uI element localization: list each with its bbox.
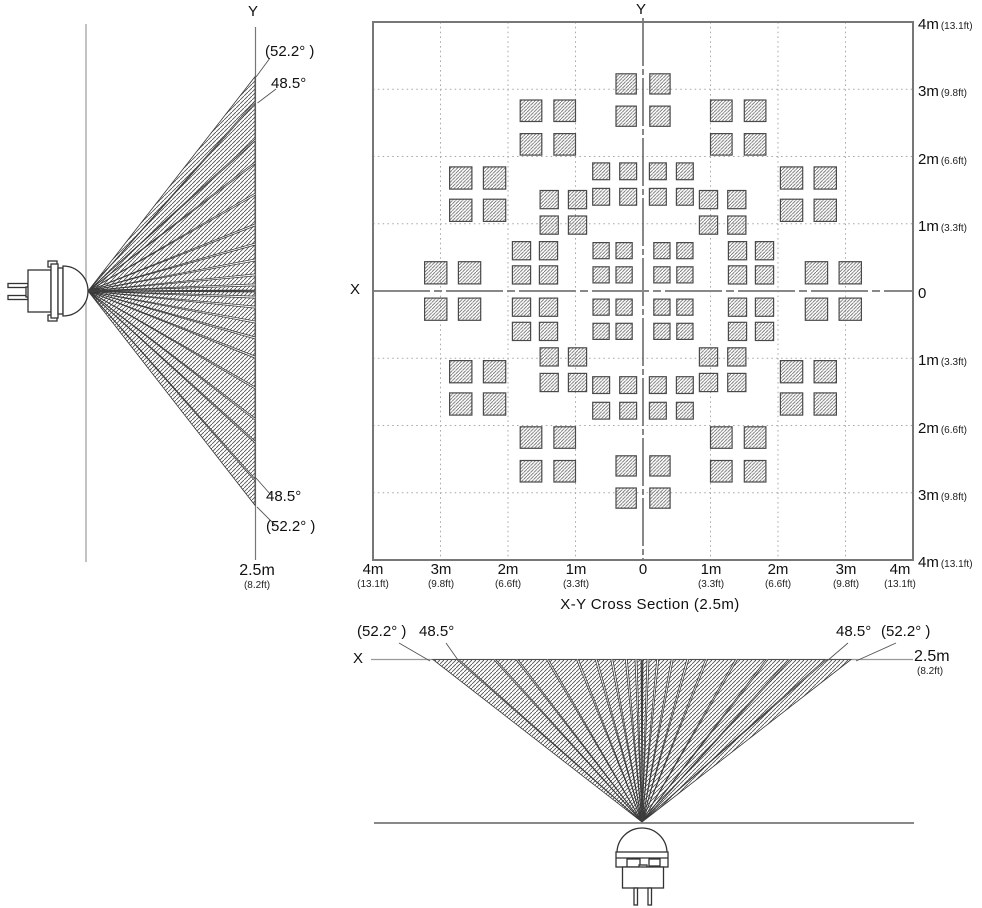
x-axis-tick: 1m(3.3ft): [544, 562, 608, 590]
side-angle-outer-bottom-label: (52.2° ): [266, 518, 315, 535]
detection-zone-square: [568, 348, 586, 366]
side-angle-outer-top-label: (52.2° ): [265, 43, 314, 60]
detection-zone-square: [593, 188, 610, 205]
sensor-dome-lens: [63, 266, 88, 316]
detection-zone-square: [616, 243, 632, 259]
detection-zone-square: [539, 298, 557, 316]
detection-zone-square: [649, 188, 666, 205]
cross-section-x-axis-label: X: [350, 281, 360, 298]
detection-zone-square: [654, 323, 670, 339]
detection-zone-square: [483, 167, 505, 189]
x-axis-tick-value: 1m: [544, 562, 608, 579]
detection-zone-square: [711, 461, 733, 483]
detection-zone-square: [814, 167, 836, 189]
x-axis-tick-value: 4m: [868, 562, 932, 579]
detection-zone-square: [676, 377, 693, 394]
x-axis-tick: 4m(13.1ft): [868, 562, 932, 590]
detection-zone-square: [839, 262, 861, 284]
detection-zone-square: [654, 267, 670, 283]
detection-zone-square: [755, 266, 773, 284]
detection-zone-square: [728, 266, 746, 284]
x-axis-tick-ft: (13.1ft): [341, 579, 405, 590]
detection-zone-square: [593, 377, 610, 394]
detection-zone-square: [568, 373, 586, 391]
y-axis-tick-ft: (13.1ft): [941, 21, 973, 32]
y-axis-tick-value: 0: [918, 285, 926, 302]
detection-zone-square: [540, 191, 558, 209]
detection-zone-square: [780, 199, 802, 221]
chart-title: X-Y Cross Section (2.5m): [495, 596, 805, 613]
x-axis-tick-ft: (3.3ft): [544, 579, 608, 590]
detection-zone-square: [814, 393, 836, 415]
y-axis-tick-ft: (3.3ft): [941, 357, 967, 368]
sensor-side-view: [8, 261, 88, 321]
leader-line: [256, 58, 270, 77]
y-axis-tick-value: 2m: [918, 151, 939, 168]
detection-zone-square: [539, 266, 557, 284]
sensor-flange: [51, 264, 58, 318]
bottom-angle-outer-left-label: (52.2° ): [357, 623, 406, 640]
detection-zone-square: [539, 322, 557, 340]
detection-zone-square: [839, 298, 861, 320]
detection-zone-square: [616, 488, 636, 508]
bottom-angle-outer-right-label: (52.2° ): [881, 623, 930, 640]
detection-zone-square: [744, 134, 766, 156]
x-axis-tick-ft: (9.8ft): [409, 579, 473, 590]
detection-zone-square: [512, 322, 530, 340]
y-axis-tick: 1m(3.3ft): [918, 352, 967, 372]
x-axis-tick-value: 4m: [341, 562, 405, 579]
detection-zone-square: [676, 402, 693, 419]
detection-zone-square: [616, 106, 636, 126]
detection-zone-square: [568, 216, 586, 234]
y-axis-tick-value: 1m: [918, 352, 939, 369]
detection-zone-square: [593, 299, 609, 315]
detection-zone-square: [650, 456, 670, 476]
detection-zone-square: [520, 427, 542, 449]
x-axis-tick-ft: (6.6ft): [476, 579, 540, 590]
x-axis-tick-value: 2m: [476, 562, 540, 579]
detection-zone-square: [744, 427, 766, 449]
detection-zone-square: [554, 134, 576, 156]
detection-zone-square: [483, 361, 505, 383]
detection-zone-square: [616, 267, 632, 283]
sensor-notch: [649, 859, 660, 866]
detection-zone-square: [780, 393, 802, 415]
x-axis-tick: 2m(6.6ft): [476, 562, 540, 590]
x-axis-tick-ft: (6.6ft): [746, 579, 810, 590]
y-axis-tick: 3m(9.8ft): [918, 83, 967, 103]
x-axis-tick-value: 3m: [409, 562, 473, 579]
y-axis-tick-value: 1m: [918, 218, 939, 235]
x-axis-tick: 0: [611, 562, 675, 579]
y-axis-tick-ft: (6.6ft): [941, 156, 967, 167]
sensor-dome-lens: [617, 828, 667, 853]
detection-zone-square: [755, 322, 773, 340]
bottom-view-panel: [371, 660, 914, 906]
detection-zone-square: [540, 348, 558, 366]
leader-line: [856, 643, 896, 661]
diagram-art: [0, 0, 982, 908]
detection-zone-square: [458, 298, 480, 320]
side-axis-y-label: Y: [248, 3, 258, 20]
detection-zone-square: [450, 393, 472, 415]
y-axis-tick-ft: (9.8ft): [941, 492, 967, 503]
detection-zone-square: [654, 243, 670, 259]
detection-zone-square: [520, 100, 542, 122]
detection-zone-square: [711, 427, 733, 449]
detection-zone-square: [512, 242, 530, 260]
y-axis-tick: 1m(3.3ft): [918, 218, 967, 238]
detection-zone-square: [593, 243, 609, 259]
side-view-panel: [8, 24, 256, 562]
detection-zone-square: [780, 361, 802, 383]
detection-zone-square: [805, 298, 827, 320]
detection-zone-square: [677, 267, 693, 283]
detection-zone-square: [593, 402, 610, 419]
y-axis-tick-ft: (3.3ft): [941, 223, 967, 234]
detection-zone-square: [593, 323, 609, 339]
sensor-pin: [8, 296, 28, 300]
detection-zone-square: [728, 242, 746, 260]
y-axis-tick-ft: (9.8ft): [941, 88, 967, 99]
detection-zone-square: [814, 361, 836, 383]
detection-zone-square: [755, 242, 773, 260]
detection-zone-square: [650, 488, 670, 508]
detection-zone-square: [728, 322, 746, 340]
x-axis-tick-ft: (13.1ft): [868, 579, 932, 590]
detection-zone-square: [649, 163, 666, 180]
y-axis-tick-value: 3m: [918, 83, 939, 100]
y-axis-tick-ft: (13.1ft): [941, 559, 973, 570]
x-axis-tick-value: 0: [611, 562, 675, 579]
detection-zone-square: [805, 262, 827, 284]
bottom-distance-label: 2.5m: [914, 648, 950, 666]
detection-zone-square: [728, 216, 746, 234]
x-axis-tick-value: 1m: [679, 562, 743, 579]
detection-zone-square: [620, 402, 637, 419]
bottom-x-axis-label: X: [353, 650, 363, 667]
detection-zone-square: [616, 456, 636, 476]
detection-zone-square: [450, 361, 472, 383]
cross-section-panel: [373, 18, 913, 560]
x-axis-tick: 3m(9.8ft): [409, 562, 473, 590]
detection-zone-square: [458, 262, 480, 284]
detection-zone-square: [450, 167, 472, 189]
detection-zone-square: [650, 106, 670, 126]
y-axis-tick-value: 2m: [918, 420, 939, 437]
x-axis-tick: 4m(13.1ft): [341, 562, 405, 590]
detection-zone-square: [593, 163, 610, 180]
detection-zone-square: [483, 199, 505, 221]
y-axis-tick: 4m(13.1ft): [918, 16, 973, 36]
detection-zone-square: [711, 100, 733, 122]
sensor-body: [28, 270, 51, 312]
bottom-angle-inner-right-label: 48.5°: [836, 623, 871, 640]
detection-zone-square: [677, 243, 693, 259]
detection-zone-square: [540, 373, 558, 391]
x-axis-tick: 2m(6.6ft): [746, 562, 810, 590]
x-axis-tick-ft: (3.3ft): [679, 579, 743, 590]
leader-line: [399, 643, 430, 661]
x-axis-tick: 1m(3.3ft): [679, 562, 743, 590]
detection-zone-square: [699, 216, 717, 234]
y-axis-tick-ft: (6.6ft): [941, 425, 967, 436]
detection-zone-square: [676, 188, 693, 205]
detection-zone-square: [814, 199, 836, 221]
bottom-angle-inner-left-label: 48.5°: [419, 623, 454, 640]
detection-zone-square: [520, 134, 542, 156]
detection-zone-square: [699, 348, 717, 366]
detection-zone-square: [744, 461, 766, 483]
detection-zone-square: [593, 267, 609, 283]
detection-zone-square: [620, 188, 637, 205]
detection-zone-square: [677, 323, 693, 339]
y-axis-tick: 2m(6.6ft): [918, 151, 967, 171]
sensor-notch: [627, 859, 640, 867]
sensor-pin: [648, 888, 652, 905]
sensor-front-view: [616, 828, 668, 905]
detection-zone-square: [755, 298, 773, 316]
detection-zone-square: [620, 377, 637, 394]
cross-section-y-axis-label: Y: [636, 1, 646, 18]
leader-line: [827, 643, 848, 661]
detection-zone-square: [649, 377, 666, 394]
sensor-pin: [8, 284, 28, 288]
detection-zone-square: [728, 373, 746, 391]
detection-zone-square: [650, 74, 670, 94]
y-axis-tick-value: 4m: [918, 16, 939, 33]
sensor-ring: [58, 268, 63, 314]
detection-zone-square: [425, 262, 447, 284]
y-axis-tick: 0: [918, 285, 926, 303]
detection-zone-square: [620, 163, 637, 180]
detection-zone-square: [728, 298, 746, 316]
sensor-pin: [634, 888, 638, 905]
detection-zone-square: [616, 323, 632, 339]
detection-zone-square: [512, 266, 530, 284]
detection-zone-square: [649, 402, 666, 419]
detection-zone-square: [616, 299, 632, 315]
y-axis-tick: 2m(6.6ft): [918, 420, 967, 440]
detection-zone-square: [450, 199, 472, 221]
detection-zone-square: [728, 348, 746, 366]
leader-line: [446, 643, 458, 660]
detection-zone-square: [711, 134, 733, 156]
detection-zone-square: [539, 242, 557, 260]
detection-zone-square: [554, 427, 576, 449]
side-distance-label: 2.5m: [236, 562, 278, 580]
detection-zone-square: [744, 100, 766, 122]
bottom-distance-ft-label: (8.2ft): [917, 666, 943, 678]
y-axis-tick: 3m(9.8ft): [918, 487, 967, 507]
detection-zone-square: [780, 167, 802, 189]
detection-zone-square: [483, 393, 505, 415]
detection-zone-square: [554, 461, 576, 483]
side-angle-inner-top-label: 48.5°: [271, 75, 306, 92]
detection-zone-square: [425, 298, 447, 320]
detection-zone-square: [512, 298, 530, 316]
detection-zone-square: [554, 100, 576, 122]
side-angle-inner-bottom-label: 48.5°: [266, 488, 301, 505]
detection-zone-square: [699, 191, 717, 209]
detection-zone-square: [654, 299, 670, 315]
side-distance-ft-label: (8.2ft): [236, 580, 278, 592]
sensor-body: [623, 867, 664, 888]
detection-zone-square: [699, 373, 717, 391]
detection-zone-square: [728, 191, 746, 209]
detection-zone-square: [616, 74, 636, 94]
y-axis-tick-value: 3m: [918, 487, 939, 504]
x-axis-tick-value: 2m: [746, 562, 810, 579]
detection-zone-square: [540, 216, 558, 234]
detection-zone-square: [677, 299, 693, 315]
pir-detection-area-diagram: Y (52.2° ) 48.5° 48.5° (52.2° ) 2.5m (8.…: [0, 0, 982, 908]
detection-zone-square: [676, 163, 693, 180]
detection-zone-square: [520, 461, 542, 483]
detection-zone-square: [568, 191, 586, 209]
